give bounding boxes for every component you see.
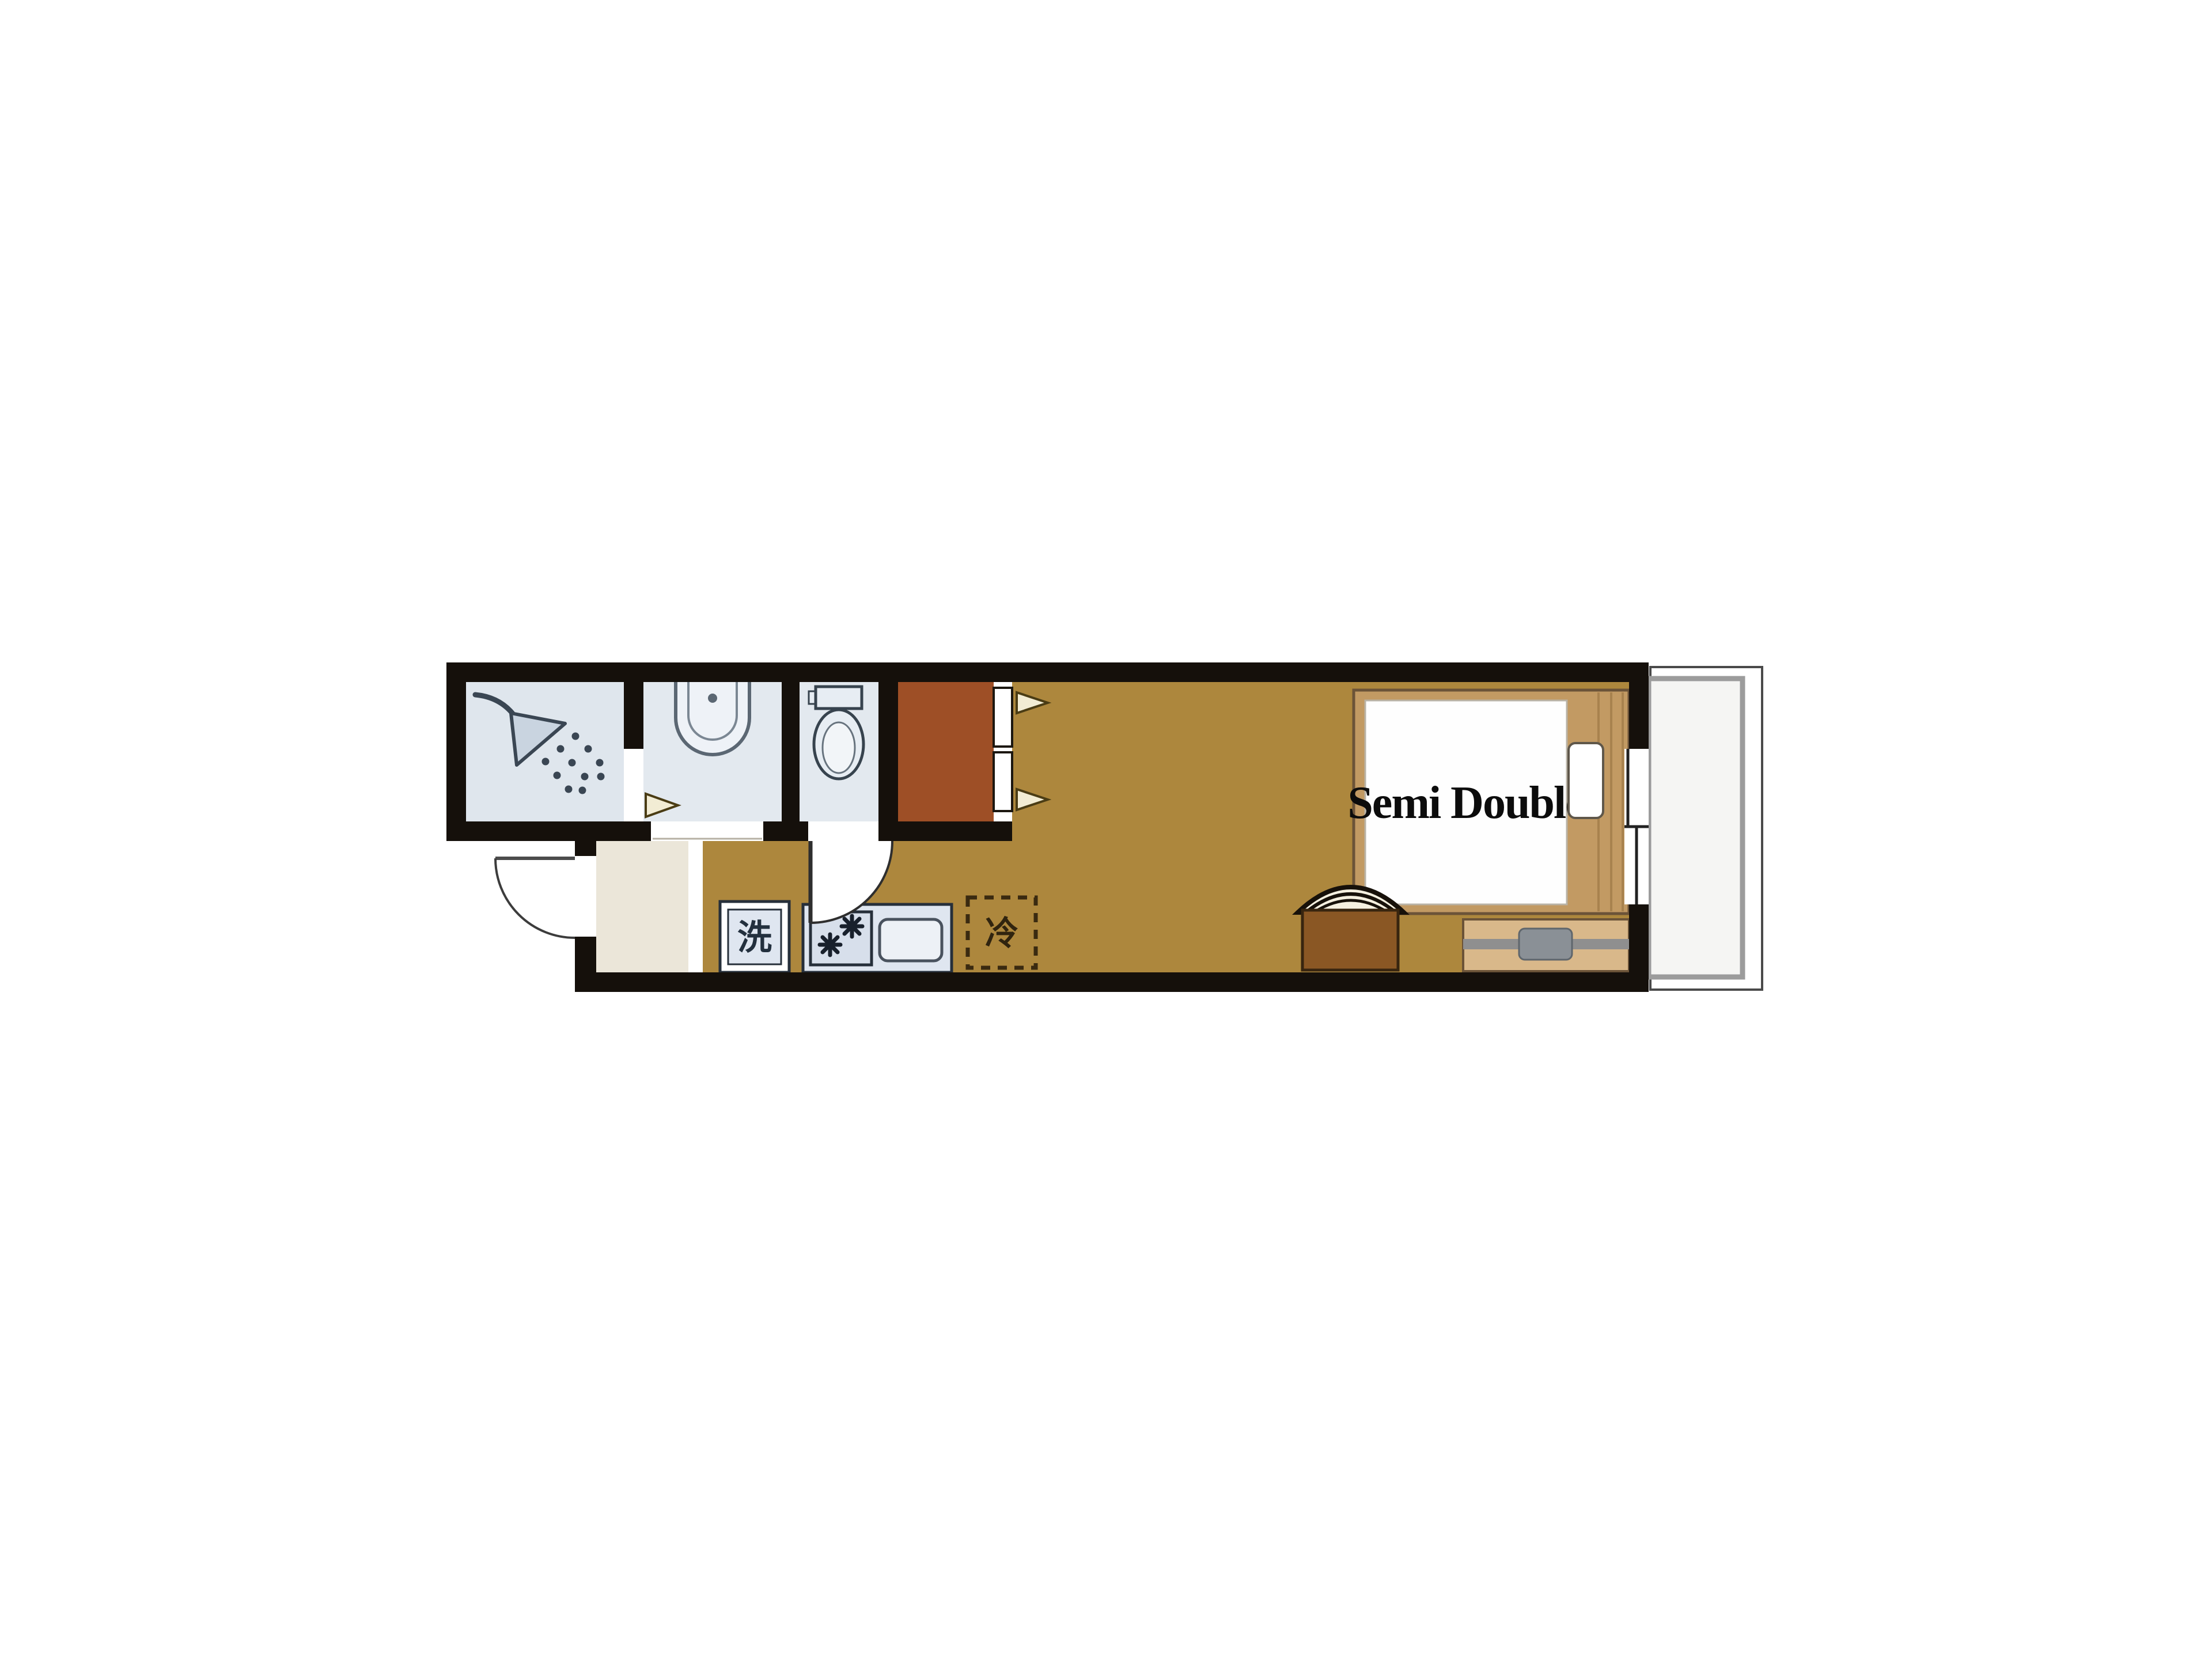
entry-genkan-floor bbox=[596, 841, 688, 972]
bed-size-label: Semi Double bbox=[1347, 778, 1585, 828]
washer-label: 洗 bbox=[737, 918, 772, 958]
wall-top bbox=[446, 662, 1649, 682]
wall-vanity-toilet bbox=[782, 682, 800, 821]
wall-left bbox=[446, 682, 466, 841]
shower-door-opening bbox=[624, 749, 643, 821]
kitchen-sink bbox=[880, 919, 942, 961]
page-background: 洗 冷 bbox=[0, 0, 2212, 1659]
bed: Semi Double bbox=[1347, 690, 1629, 914]
balcony-window bbox=[1624, 749, 1649, 904]
toilet-doorway-opening bbox=[808, 821, 878, 841]
wall-toilet-closet bbox=[878, 682, 898, 821]
chair-seat bbox=[1302, 910, 1398, 970]
closet-floor bbox=[898, 682, 994, 821]
closet-door-panel-bottom bbox=[994, 752, 1012, 811]
closet-door-panel-top bbox=[994, 688, 1012, 747]
washing-machine: 洗 bbox=[720, 902, 789, 972]
faucet-dot-icon bbox=[708, 694, 717, 703]
vanity-sink-icon bbox=[676, 682, 749, 755]
floor-plan: 洗 冷 bbox=[446, 662, 1766, 994]
floor-plan-drawing: 洗 冷 bbox=[446, 662, 1766, 994]
entry-door-arc bbox=[495, 858, 575, 938]
entry-door-opening bbox=[575, 856, 596, 937]
pillow bbox=[1569, 743, 1603, 818]
fridge-label: 冷 bbox=[985, 914, 1018, 953]
tv-icon bbox=[1519, 929, 1572, 960]
shower-room-floor bbox=[466, 682, 624, 821]
entry-step-strip bbox=[688, 841, 703, 972]
wall-bottom bbox=[575, 972, 1649, 992]
tv-board bbox=[1463, 919, 1629, 971]
balcony bbox=[1649, 667, 1762, 990]
chair bbox=[1298, 887, 1404, 970]
entry-door-swing bbox=[495, 858, 575, 938]
balcony-floor bbox=[1649, 679, 1743, 977]
